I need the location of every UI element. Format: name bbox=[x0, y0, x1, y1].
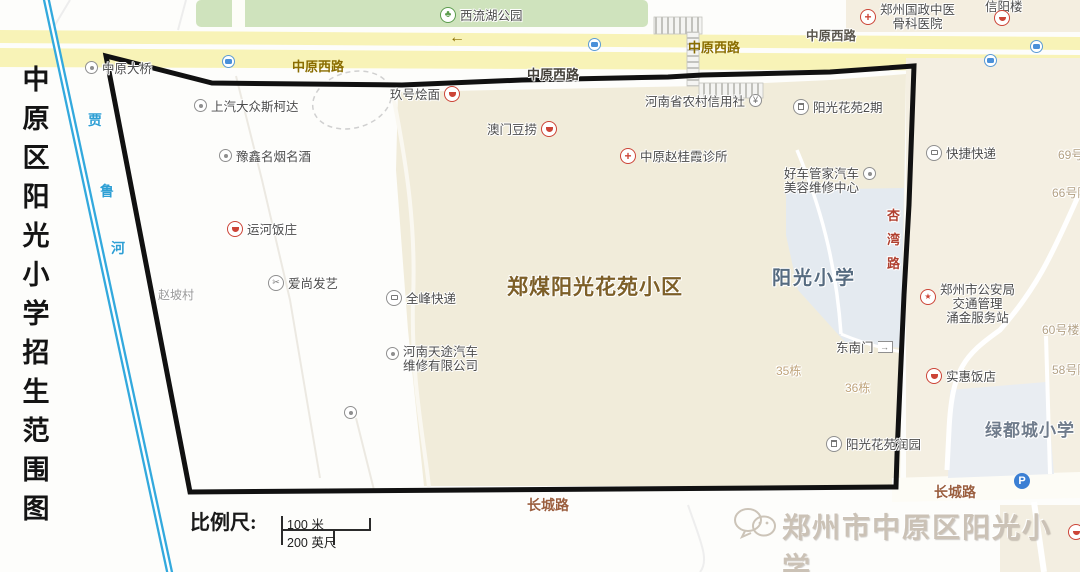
poi-guozheng-hospital: + 郑州国政中医 骨科医院 bbox=[860, 3, 955, 31]
building-icon bbox=[826, 436, 842, 452]
poi-label: 阳光花苑润园 bbox=[846, 434, 921, 453]
title-char: 学 bbox=[23, 292, 50, 331]
road-char: 路 bbox=[887, 253, 900, 272]
bus-stop-icon bbox=[984, 54, 997, 67]
poi-label: 快捷快递 bbox=[946, 143, 996, 162]
watermark-logo bbox=[733, 503, 781, 545]
title-char: 生 bbox=[23, 370, 50, 409]
restaurant-icon bbox=[541, 121, 557, 137]
road-zhongyuanxilu bbox=[0, 30, 1080, 50]
poi-rural-credit-union: 河南省农村信用社 ¥ bbox=[645, 91, 762, 110]
poi-label: 交通管理 bbox=[953, 297, 1003, 311]
road-label-zhongyuanxilu: 中原西路 bbox=[688, 37, 740, 56]
poi-label: 实惠饭店 bbox=[946, 366, 996, 385]
poi-label: 维修有限公司 bbox=[403, 359, 478, 373]
title-char: 图 bbox=[23, 487, 50, 526]
road-label-zhongyuanxilu: 中原西路 bbox=[806, 25, 856, 44]
poi-label: 澳门豆捞 bbox=[487, 119, 537, 138]
star-icon: ★ bbox=[920, 289, 936, 305]
building-number: 35栋 bbox=[776, 362, 801, 379]
building-icon bbox=[793, 99, 809, 115]
road-label-changcheng: 长城路 bbox=[527, 495, 569, 515]
poi-label: 河南天途汽车 bbox=[403, 345, 478, 359]
title-char: 小 bbox=[23, 253, 50, 292]
river-name-char: 贾 bbox=[88, 110, 102, 130]
road-label-zhongyuanxilu: 中原西路 bbox=[527, 64, 579, 83]
building-number: 36栋 bbox=[845, 379, 870, 396]
clinic-cross-icon: + bbox=[620, 148, 636, 164]
green-school-name: 绿都城小学 bbox=[985, 416, 1075, 441]
title-char: 围 bbox=[23, 448, 50, 487]
poi-label: 西流湖公园 bbox=[460, 5, 523, 24]
bank-icon: ¥ bbox=[749, 94, 762, 107]
poi-kuaijie-express: 快捷快递 bbox=[926, 143, 996, 162]
school-name: 阳光小学 bbox=[772, 263, 856, 290]
park-icon: ♣ bbox=[440, 7, 456, 23]
arrow-left-icon: ← bbox=[449, 29, 465, 47]
title-char: 范 bbox=[23, 409, 50, 448]
landmark-icon bbox=[344, 406, 357, 419]
poi-zhongyuan-bridge: 中原大桥 bbox=[85, 58, 152, 77]
poi-label: 阳光花苑2期 bbox=[813, 97, 882, 116]
poi-yuxin-tobacco: 豫鑫名烟名酒 bbox=[219, 146, 311, 165]
poi-yangguang-huayuan-2: 阳光花苑2期 bbox=[793, 97, 882, 116]
poi-xiliuhu-park: ♣ 西流湖公园 bbox=[440, 5, 523, 24]
poi-skoda: 上汽大众斯柯达 bbox=[194, 96, 299, 115]
title-char: 原 bbox=[23, 97, 50, 136]
poi-label: 豫鑫名烟名酒 bbox=[236, 146, 311, 165]
river-name-char: 鲁 bbox=[100, 181, 114, 201]
bus-stop-icon bbox=[588, 38, 601, 51]
delivery-icon bbox=[926, 145, 942, 161]
poi-tiantu-auto: 河南天途汽车 维修有限公司 bbox=[386, 345, 478, 373]
dot-icon bbox=[863, 167, 876, 180]
poi-runyuan: 阳光花苑润园 bbox=[826, 434, 921, 453]
poi-label: 美容维修中心 bbox=[784, 181, 859, 195]
footbridge bbox=[654, 17, 702, 34]
poi-label: 涌金服务站 bbox=[946, 311, 1009, 325]
dot-icon bbox=[194, 99, 207, 112]
hospital-cross-icon: + bbox=[860, 9, 876, 25]
map-canvas: 中 原 区 阳 光 小 学 招 生 范 围 图 贾 鲁 河 ♣ 西流湖公园 中原… bbox=[0, 0, 1080, 572]
scissors-icon: ✂ bbox=[268, 275, 284, 291]
river-name-char: 河 bbox=[111, 238, 125, 258]
restaurant-icon bbox=[926, 368, 942, 384]
poi-quanfeng-express: 全峰快递 bbox=[386, 288, 456, 307]
road-char: 湾 bbox=[887, 229, 900, 248]
poi-label: 玖号烩面 bbox=[390, 84, 440, 103]
poi-haoche-auto-care: 好车管家汽车 美容维修中心 bbox=[784, 167, 876, 195]
bus-stop-icon bbox=[1030, 40, 1043, 53]
watermark-text: 郑州市中原区阳光小学 bbox=[782, 506, 1080, 572]
dot-icon bbox=[85, 61, 98, 74]
poi-jiuhao-noodles: 玖号烩面 bbox=[390, 84, 460, 103]
map-title-vertical: 中 原 区 阳 光 小 学 招 生 范 围 图 bbox=[14, 58, 58, 510]
dot-icon bbox=[219, 149, 232, 162]
park-area bbox=[196, 0, 648, 27]
poi-label: 全峰快递 bbox=[406, 288, 456, 307]
bus-stop-icon bbox=[222, 55, 235, 68]
poi-label: 骨科医院 bbox=[893, 17, 943, 31]
poi-label: 中原赵桂霞诊所 bbox=[640, 146, 728, 165]
poi-southeast-gate: 东南门 → bbox=[836, 337, 893, 356]
poi-label: 爱尚发艺 bbox=[288, 273, 338, 292]
poi-label: 东南门 bbox=[836, 337, 874, 356]
dot-icon bbox=[386, 347, 399, 360]
poi-label: 好车管家汽车 bbox=[784, 167, 859, 181]
parking-icon: P bbox=[1014, 473, 1030, 489]
poi-label: 郑州市公安局 bbox=[940, 283, 1015, 297]
restaurant-icon bbox=[227, 221, 243, 237]
community-name: 郑煤阳光花苑小区 bbox=[507, 271, 683, 301]
building-number: 66号院 bbox=[1052, 184, 1080, 201]
poi-label: 运河饭庄 bbox=[247, 219, 297, 238]
building-number: 69号 bbox=[1058, 146, 1080, 163]
title-char: 中 bbox=[23, 58, 50, 97]
delivery-icon bbox=[386, 290, 402, 306]
building-number: 58号院 bbox=[1052, 361, 1080, 378]
gate-icon: → bbox=[878, 341, 893, 353]
poi-traffic-police-station: ★ 郑州市公安局 交通管理 涌金服务站 bbox=[920, 283, 1015, 325]
poi-zhaoguixia-clinic: + 中原赵桂霞诊所 bbox=[620, 146, 728, 165]
poi-label: 中原大桥 bbox=[102, 58, 152, 77]
poi-label: 河南省农村信用社 bbox=[645, 91, 745, 110]
restaurant-icon bbox=[994, 10, 1010, 26]
road-label-zhongyuanxilu: 中原西路 bbox=[292, 56, 344, 75]
road-char: 杏 bbox=[887, 205, 900, 224]
poi-aomen-hotpot: 澳门豆捞 bbox=[487, 119, 557, 138]
title-char: 光 bbox=[23, 214, 50, 253]
restaurant-icon bbox=[444, 86, 460, 102]
title-char: 阳 bbox=[23, 175, 50, 214]
building-number: 60号楼 bbox=[1042, 321, 1079, 338]
poi-label: 上汽大众斯柯达 bbox=[211, 96, 299, 115]
title-char: 区 bbox=[23, 136, 50, 175]
poi-yunhe-restaurant: 运河饭庄 bbox=[227, 219, 297, 238]
poi-label: 郑州国政中医 bbox=[880, 3, 955, 17]
poi-aishang-hair: ✂ 爱尚发艺 bbox=[268, 273, 338, 292]
scale-feet: 200 英尺 bbox=[287, 532, 336, 551]
road-label-changcheng: 长城路 bbox=[934, 482, 976, 502]
village-label: 赵坡村 bbox=[158, 286, 194, 303]
road-label-xingwan: 杏 湾 路 bbox=[887, 205, 900, 272]
poi-shihui-restaurant: 实惠饭店 bbox=[926, 366, 996, 385]
scale-label: 比例尺: bbox=[190, 506, 257, 535]
title-char: 招 bbox=[23, 331, 50, 370]
scale-meters: 100 米 bbox=[287, 514, 324, 533]
